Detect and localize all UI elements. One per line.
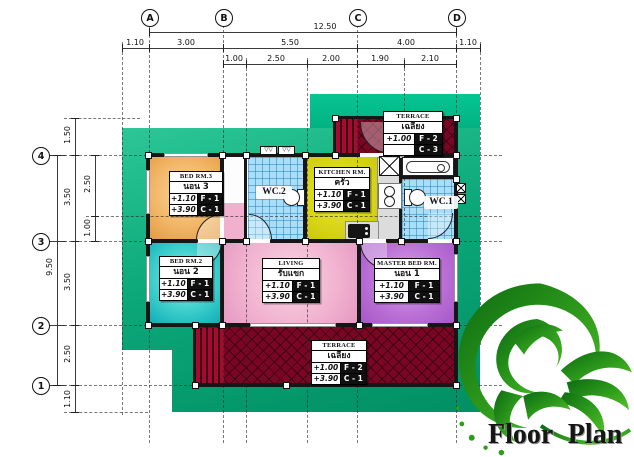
window: [372, 323, 428, 327]
shaft-x-icon: [379, 156, 400, 176]
column-marker: [145, 152, 152, 159]
room-name-th: นอน 3: [170, 182, 222, 194]
column-marker: [219, 152, 226, 159]
dimension-tick: [223, 60, 224, 68]
dimension-tick: [223, 44, 224, 52]
page-title: Floor Plan: [488, 419, 634, 451]
grid-bubble-D: D: [448, 9, 466, 27]
column-marker: [192, 322, 199, 329]
ceiling-spec: +3.90C - 1: [170, 204, 222, 215]
dimension-tick: [307, 60, 308, 68]
bathtub-icon: [402, 157, 454, 176]
dimension-tick: [456, 28, 457, 36]
ceiling-spec: +3.90C - 1: [263, 291, 319, 302]
terrace-bottom-steps: [196, 328, 224, 383]
floor-spec: +1.10F - 1: [375, 281, 439, 291]
room-label-bed2: BED RM.2 นอน 2 +1.10F - 1 +3.90C - 1: [159, 256, 213, 301]
dim-top1-1: 3.00: [177, 38, 195, 47]
grid-bubble-3: 3: [32, 233, 50, 251]
dim-top1-4: 1.10: [459, 38, 477, 47]
column-marker: [243, 152, 250, 159]
dim-top1-3: 4.00: [397, 38, 415, 47]
grid-line-vertical: [122, 42, 123, 415]
column-marker: [302, 238, 309, 245]
grid-bubble-1: 1: [32, 377, 50, 395]
column-marker: [219, 238, 226, 245]
wall-segment: [357, 239, 361, 327]
column-marker: [398, 238, 405, 245]
floor-spec: +1.00F - 2: [312, 363, 366, 373]
dimension-tick: [71, 412, 79, 413]
column-marker: [453, 176, 460, 183]
ceiling-spec: +3.90C - 1: [375, 291, 439, 302]
dimension-tick: [357, 60, 358, 68]
dimension-tick: [71, 155, 79, 156]
window: [146, 256, 150, 302]
room-name-th: นอน 1: [375, 269, 439, 281]
wall-segment: [400, 176, 457, 179]
grid-bubble-B: B: [215, 9, 233, 27]
room-name-en: BED RM.2: [160, 257, 212, 267]
dim-left2-0: 2.50: [83, 175, 92, 193]
column-marker: [332, 115, 339, 122]
room-label-living: LIVING รับแขก +1.10F - 1 +3.90C - 1: [262, 258, 320, 303]
dim-top2-0: 1.00: [225, 54, 243, 63]
dimension-tick: [404, 60, 405, 68]
column-marker: [283, 382, 290, 389]
room-label-terrace-bottom: TERRACE เฉลียง +1.00F - 2 +3.90C - 1: [311, 340, 367, 385]
room-name-en: LIVING: [263, 259, 319, 269]
grid-bubble-A: A: [141, 9, 159, 27]
ceiling-spec: +3.90C - 1: [312, 373, 366, 384]
roof-vent-icon: ▽▽: [278, 146, 295, 155]
dim-left1-0: 1.50: [63, 126, 72, 144]
room-label-wc1: WC.1: [424, 196, 458, 209]
floor-spec: +1.10F - 1: [160, 279, 212, 289]
column-marker: [356, 322, 363, 329]
column-marker: [243, 238, 250, 245]
stove-icon: [348, 224, 370, 238]
column-marker: [453, 238, 460, 245]
roof-vent-icon: ▽▽: [260, 146, 277, 155]
room-name-th: นอน 2: [160, 267, 212, 279]
wall-segment: [193, 323, 196, 387]
floor-spec: +1.10F - 1: [170, 194, 222, 204]
room-name-th: รับแขก: [263, 269, 319, 281]
dimension-tick: [149, 44, 150, 52]
grid-bubble-2: 2: [32, 317, 50, 335]
dim-left1-4: 1.10: [63, 390, 72, 408]
window: [164, 153, 208, 157]
room-label-wc2: WC.2: [256, 186, 292, 199]
dimension-tick: [456, 60, 457, 68]
dim-top2-1: 2.50: [267, 54, 285, 63]
dimension-tick: [71, 241, 79, 242]
ceiling-spec: +3.90C - 1: [315, 200, 369, 211]
dim-overall-width: 12.50: [314, 22, 337, 31]
dimension-line: [75, 118, 76, 412]
dimension-line: [122, 48, 480, 49]
room-name-th: เฉลียง: [312, 351, 366, 363]
dimension-line: [48, 241, 66, 242]
wall-segment: [333, 116, 336, 157]
dim-overall-height: 9.50: [45, 258, 54, 276]
dimension-tick: [246, 60, 247, 68]
ground-notch: [122, 350, 172, 412]
window-x-icon: [456, 183, 466, 193]
room-name-en: KITCHEN RM.: [315, 168, 369, 178]
room-name-th: เฉลียง: [384, 122, 442, 134]
column-marker: [145, 238, 152, 245]
column-marker: [145, 322, 152, 329]
dimension-tick: [71, 325, 79, 326]
room-label-kitchen: KITCHEN RM. ครัว +1.10F - 1 +3.90C - 1: [314, 167, 370, 212]
column-marker: [453, 115, 460, 122]
grid-bubble-C: C: [349, 9, 367, 27]
dimension-tick: [53, 155, 61, 156]
room-name-en: TERRACE: [312, 341, 366, 351]
door-gap: [428, 239, 452, 243]
column-marker: [192, 382, 199, 389]
column-marker: [453, 152, 460, 159]
column-marker: [219, 322, 226, 329]
window: [146, 170, 150, 214]
room-name-en: BED RM.3: [170, 172, 222, 182]
sliding-door: [250, 323, 336, 327]
dimension-tick: [91, 155, 99, 156]
dimension-line: [223, 64, 456, 65]
dimension-tick: [456, 44, 457, 52]
dimension-line: [149, 32, 456, 33]
column-marker: [356, 238, 363, 245]
wall-segment: [220, 239, 224, 327]
room-label-master: MASTER BED RM. นอน 1 +1.10F - 1 +3.90C -…: [374, 258, 440, 303]
dim-top1-0: 1.10: [126, 38, 144, 47]
room-label-bed3: BED RM.3 นอน 3 +1.10F - 1 +3.90C - 1: [169, 171, 223, 216]
floor-spec: +1.10F - 1: [263, 281, 319, 291]
dimension-tick: [71, 385, 79, 386]
dim-top1-2: 5.50: [281, 38, 299, 47]
dimension-tick: [122, 44, 123, 52]
dimension-tick: [53, 385, 61, 386]
dim-left2-1: 1.00: [83, 219, 92, 237]
floor-spec: +1.10F - 1: [315, 190, 369, 200]
dim-top2-3: 1.90: [371, 54, 389, 63]
ceiling-spec: +3.90C - 1: [160, 289, 212, 300]
terrace-top-steps: [336, 119, 358, 154]
dim-top2-4: 2.10: [421, 54, 439, 63]
dimension-tick: [357, 44, 358, 52]
dim-left1-1: 3.50: [63, 188, 72, 206]
floor-plan-canvas: ▽▽ ▽▽ BED RM.3 นอน 3 +1.10F - 1 +3.90C -…: [0, 0, 634, 457]
ceiling-spec: C - 3: [384, 144, 442, 155]
dimension-tick: [91, 216, 99, 217]
dimension-tick: [71, 118, 79, 119]
dimension-tick: [91, 241, 99, 242]
column-marker: [332, 152, 339, 159]
kitchen-sink-icon: [378, 183, 402, 209]
room-name-th: ครัว: [315, 178, 369, 190]
room-name-en: TERRACE: [384, 112, 442, 122]
dimension-tick: [149, 28, 150, 36]
column-marker: [302, 152, 309, 159]
dim-left1-2: 3.50: [63, 273, 72, 291]
dimension-line: [48, 325, 66, 326]
floor-spec: +1.00F - 2: [384, 134, 442, 144]
dim-top2-2: 2.00: [322, 54, 340, 63]
dimension-tick: [480, 44, 481, 52]
room-label-terrace-top: TERRACE เฉลียง +1.00F - 2 C - 3: [383, 111, 443, 156]
grid-bubble-4: 4: [32, 147, 50, 165]
room-name-en: MASTER BED RM.: [375, 259, 439, 269]
dimension-line: [95, 155, 96, 241]
dimension-line: [57, 155, 58, 385]
dim-left1-3: 2.50: [63, 345, 72, 363]
toilet-icon: [404, 188, 426, 205]
wall-segment: [244, 153, 247, 243]
